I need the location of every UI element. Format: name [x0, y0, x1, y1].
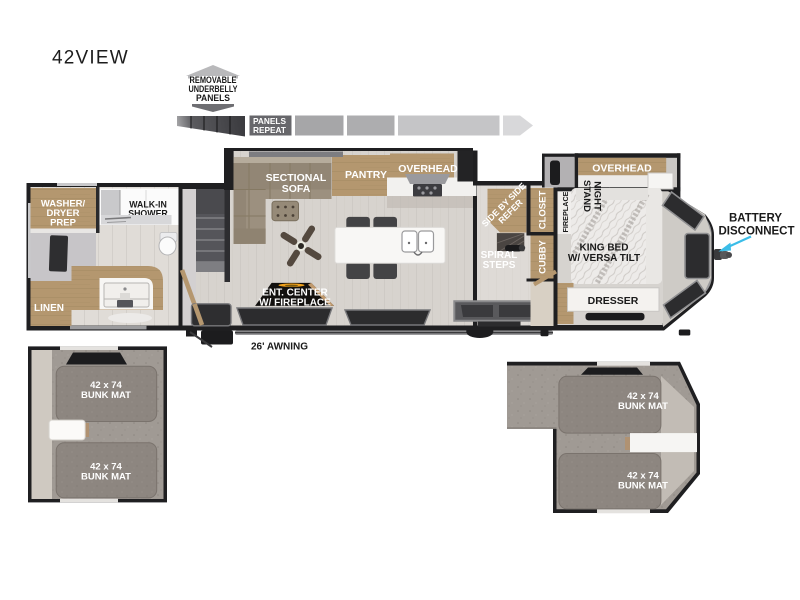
svg-text:W/ FIREPLACE: W/ FIREPLACE — [259, 298, 331, 309]
svg-text:KING BED: KING BED — [580, 243, 629, 254]
svg-text:BUNK MAT: BUNK MAT — [618, 481, 668, 492]
svg-text:BUNK MAT: BUNK MAT — [81, 472, 131, 483]
svg-text:PANELS: PANELS — [196, 93, 230, 104]
svg-text:NIGHT: NIGHT — [592, 181, 603, 211]
svg-text:BUNK MAT: BUNK MAT — [81, 390, 131, 401]
svg-text:STEPS: STEPS — [483, 260, 516, 271]
svg-text:BATTERY: BATTERY — [729, 213, 782, 225]
svg-text:CUBBY: CUBBY — [538, 239, 549, 273]
svg-text:FIREPLACE: FIREPLACE — [561, 192, 570, 233]
svg-text:42VIEW: 42VIEW — [52, 48, 129, 69]
svg-text:CLOSET: CLOSET — [538, 191, 549, 230]
svg-text:DRESSER: DRESSER — [588, 295, 639, 307]
svg-text:PANTRY: PANTRY — [345, 169, 387, 181]
svg-text:STAND: STAND — [581, 180, 592, 212]
svg-text:OVERHEAD: OVERHEAD — [398, 163, 458, 175]
svg-text:LINEN: LINEN — [34, 303, 64, 314]
svg-text:DISCONNECT: DISCONNECT — [718, 226, 794, 238]
svg-text:BUNK MAT: BUNK MAT — [618, 401, 668, 412]
svg-text:REPEAT: REPEAT — [253, 125, 287, 135]
svg-text:SOFA: SOFA — [282, 183, 311, 195]
svg-text:W/ VERSA TILT: W/ VERSA TILT — [568, 253, 640, 264]
svg-text:26' AWNING: 26' AWNING — [251, 342, 308, 353]
svg-text:OVERHEAD: OVERHEAD — [592, 163, 652, 175]
svg-text:PREP: PREP — [50, 218, 77, 229]
